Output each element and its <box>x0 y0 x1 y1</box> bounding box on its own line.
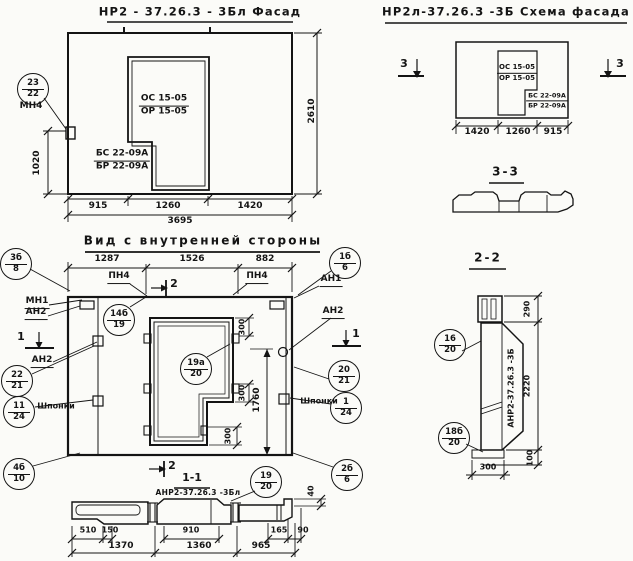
facade-linework <box>43 22 322 222</box>
dim-1526: 1526 <box>179 255 204 265</box>
dim-2220: 2220 <box>524 375 533 397</box>
schema-title: НР2л-37.26.3 -3Б Схема фасада <box>382 6 630 19</box>
drawing-linework <box>0 0 633 561</box>
label-pn4-right: ПН4 <box>245 272 268 284</box>
dim-3695: 3695 <box>167 217 192 227</box>
section-mark-1-right: 1 <box>352 328 360 340</box>
schema-dim-1260: 1260 <box>505 128 530 138</box>
dim-300-a: 300 <box>239 319 248 336</box>
drawing-sheet: НР2 - 37.26.3 - 3Бл Фасад ОС 15-05ОР 15-… <box>0 0 633 561</box>
callout-11-24: 1124 <box>3 396 35 428</box>
section-3-3-linework <box>453 183 573 212</box>
dim-1420: 1420 <box>237 202 262 212</box>
section-mark-3-left: 3 <box>400 58 408 70</box>
callout-20-21: 2021 <box>328 360 360 392</box>
label-pn4-left: ПН4 <box>107 272 130 284</box>
section-mark-2-top: 2 <box>170 278 178 290</box>
section-1-1-title: 1-1 <box>182 472 202 484</box>
label-an2-left-top: АН2 <box>25 308 48 320</box>
dim-150: 150 <box>102 527 119 536</box>
dim-965: 965 <box>252 542 271 552</box>
callout-18b-20: 18б20 <box>438 422 470 454</box>
dim-1360: 1360 <box>186 542 211 552</box>
label-an2-right: АН2 <box>322 307 345 319</box>
dim-882: 882 <box>256 255 275 265</box>
dim-165: 165 <box>271 527 288 536</box>
dim-510: 510 <box>80 527 97 536</box>
dim-100: 100 <box>527 450 536 467</box>
label-shponki-left: Шпонки <box>37 403 74 412</box>
callout-14b-19: 14б19 <box>103 304 135 336</box>
callout-1-24: 124 <box>330 392 362 424</box>
dim-910: 910 <box>183 527 200 536</box>
section-1-1-panel-mark: АНР2-37.26.3 -3Бл <box>156 489 241 497</box>
callout-2b-6: 2б6 <box>331 459 363 491</box>
facade-window-mark: ОС 15-05ОР 15-05 <box>139 95 189 118</box>
dim-2610: 2610 <box>308 98 318 123</box>
callout-16-20: 1620 <box>434 329 466 361</box>
callout-19-20: 1920 <box>250 466 282 498</box>
schema-dim-915: 915 <box>544 128 563 138</box>
section-mark-2-bottom: 2 <box>168 460 176 472</box>
section-2-2-title: 2-2 <box>474 251 502 264</box>
facade-title: НР2 - 37.26.3 - 3Бл Фасад <box>99 6 302 19</box>
dim-40: 40 <box>308 485 317 496</box>
section-mark-3-right: 3 <box>616 58 624 70</box>
section-3-3-title: 3-3 <box>492 165 520 178</box>
dim-290: 290 <box>524 301 533 318</box>
dim-90: 90 <box>297 527 308 536</box>
schema-block-mark: БС 22-09АБР 22-09А <box>526 92 568 109</box>
dim-1370: 1370 <box>108 542 133 552</box>
section-2-2-panel-mark: АНР2-37.26.3 -3Б <box>508 348 517 427</box>
inner-view-title: Вид с внутренней стороны <box>84 234 323 247</box>
callout-22-21: 2221 <box>1 365 33 397</box>
dim-1260: 1260 <box>155 202 180 212</box>
anchor-label-mn4: МН4 <box>20 102 43 112</box>
dim-915: 915 <box>89 202 108 212</box>
callout-3b-8: 3б8 <box>0 248 32 280</box>
dim-1020: 1020 <box>33 150 43 175</box>
schema-dim-1420: 1420 <box>464 128 489 138</box>
dim-300-b: 300 <box>239 385 248 402</box>
schema-window-mark: ОС 15-05ОР 15-05 <box>497 64 537 82</box>
section-mark-1-left: 1 <box>17 331 25 343</box>
dim-300-section22: 300 <box>480 464 497 473</box>
dim-1760: 1760 <box>253 387 263 412</box>
dim-300-c: 300 <box>225 428 234 445</box>
dim-1287: 1287 <box>94 255 119 265</box>
label-an2-left: АН2 <box>31 356 54 368</box>
facade-block-mark: БС 22-09АБР 22-09А <box>94 150 150 173</box>
callout-1b-6: 1б6 <box>329 247 361 279</box>
callout-19a-20: 19а20 <box>180 353 212 385</box>
callout-4b-10: 4б10 <box>3 458 35 490</box>
